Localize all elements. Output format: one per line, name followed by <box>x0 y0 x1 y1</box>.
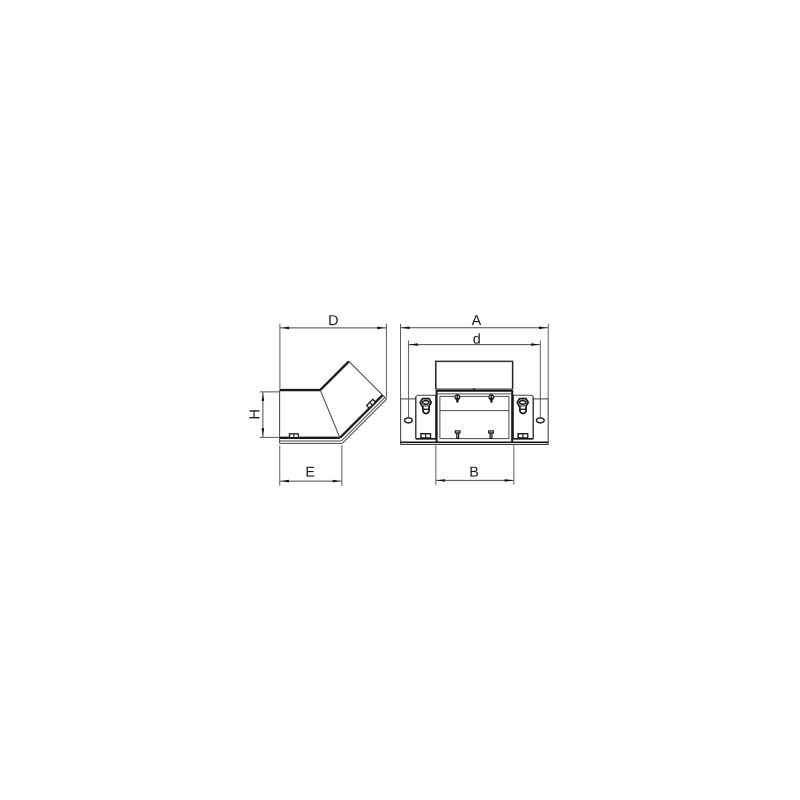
svg-text:B: B <box>469 465 479 481</box>
svg-text:H: H <box>248 409 264 419</box>
svg-text:A: A <box>472 313 482 329</box>
svg-text:E: E <box>305 465 315 481</box>
svg-text:D: D <box>328 313 338 329</box>
svg-text:d: d <box>473 332 481 348</box>
